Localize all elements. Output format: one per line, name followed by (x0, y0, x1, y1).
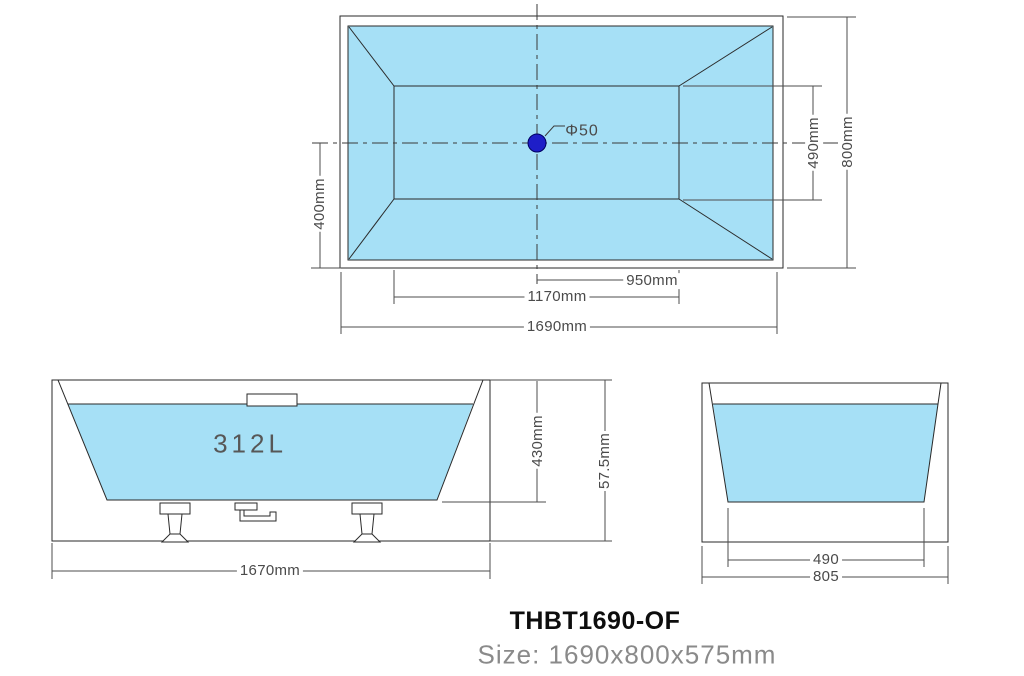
dim-1670mm-label: 1670mm (237, 563, 303, 579)
size-subtitle: Size: 1690x800x575mm (475, 641, 780, 668)
end-water-fill (713, 404, 938, 502)
dim-490mm-label: 490mm (805, 115, 823, 171)
side-view-drawing (52, 380, 490, 542)
drain-diameter-label: Φ50 (562, 124, 602, 141)
end-view-drawing (702, 383, 948, 542)
dim-430mm-label: 430mm (529, 413, 547, 469)
dim-400mm-label: 400mm (311, 176, 329, 232)
dim-950mm-label: 950mm (623, 273, 681, 289)
dim-1690mm-label: 1690mm (524, 319, 590, 335)
drain-hole (528, 134, 546, 152)
dim-800mm-label: 800mm (839, 114, 857, 170)
linework-svg (0, 0, 1024, 676)
dim-805-label: 805 (810, 569, 842, 585)
capacity-label: 312L (210, 430, 290, 457)
drawing-canvas: Φ50 400mm 490mm 800mm 950mm 1170mm 1690m… (0, 0, 1024, 676)
model-number-title: THBT1690-OF (507, 608, 684, 634)
dim-1170mm-label: 1170mm (524, 289, 589, 305)
dim-490-label: 490 (810, 552, 842, 568)
overflow-fitting (247, 394, 297, 406)
top-view-drawing (312, 4, 856, 284)
dim-57-5mm-label: 57.5mm (596, 431, 614, 491)
